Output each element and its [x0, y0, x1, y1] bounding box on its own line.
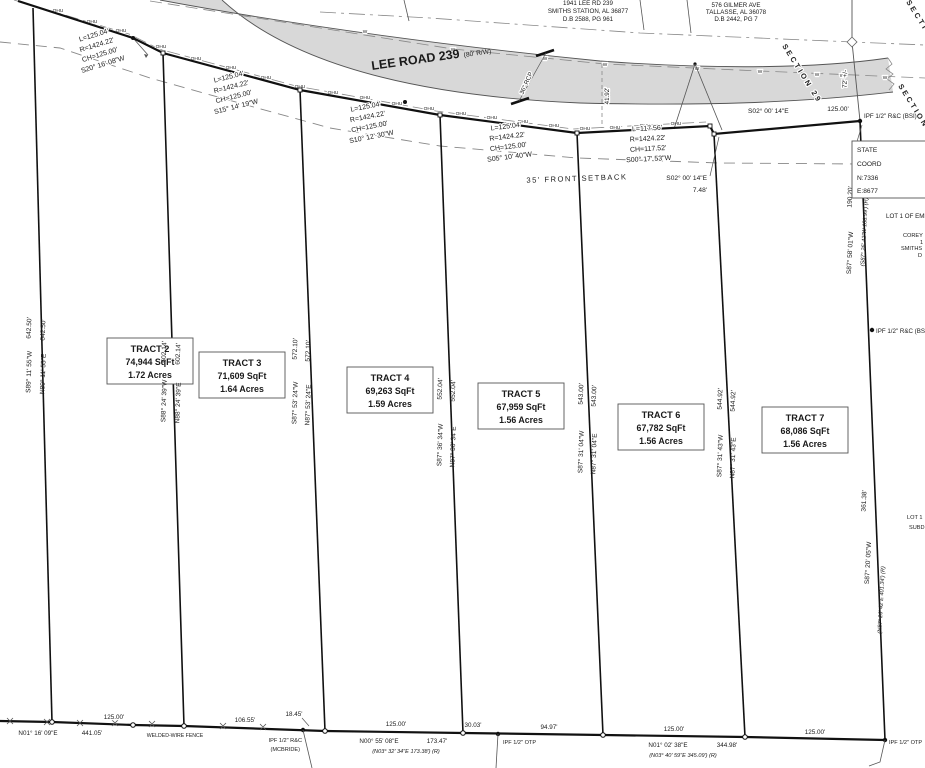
svg-text:361.38': 361.38'	[860, 490, 868, 512]
svg-text:173.47': 173.47'	[427, 738, 447, 745]
plat-drawing: W W W W W W W W W LEE ROAD 239(80' R/W) …	[0, 0, 925, 768]
svg-text:IPF 1/2" R&C: IPF 1/2" R&C	[269, 738, 302, 744]
svg-text:1941 LEE RD 239: 1941 LEE RD 239	[563, 0, 613, 7]
svg-text:94.97': 94.97'	[541, 724, 558, 731]
side-labels-6-7: 544.92' 544.92' S87° 31' 43"W N87° 31' 4…	[715, 388, 737, 478]
svg-text:544.92': 544.92'	[717, 388, 725, 410]
svg-text:68,086 SqFt: 68,086 SqFt	[781, 426, 830, 436]
svg-text:TRACT 3: TRACT 3	[223, 358, 262, 368]
svg-text:576 GILMER AVE: 576 GILMER AVE	[711, 2, 760, 9]
drop-line	[303, 730, 312, 768]
svg-text:IPF 1/2" R&C (BSI): IPF 1/2" R&C (BSI)	[864, 113, 917, 120]
svg-text:TALLASSE, AL 36078: TALLASSE, AL 36078	[706, 9, 767, 16]
svg-text:N87° 36' 34"E: N87° 36' 34"E	[448, 426, 457, 468]
svg-text:67,959 SqFt: 67,959 SqFt	[497, 402, 546, 412]
svg-text:IPF 1/2" R&C (BSI): IPF 1/2" R&C (BSI)	[876, 328, 925, 335]
svg-text:SUBD: SUBD	[909, 525, 925, 531]
jog-length: 7.48'	[693, 187, 707, 194]
curve-label-5: L=117.56'R=1424.22'CH=117.52'S00° 17' 53…	[624, 124, 671, 164]
svg-text:18.45': 18.45'	[286, 711, 303, 718]
svg-text:N88° 24' 39"E: N88° 24' 39"E	[173, 382, 182, 424]
svg-text:(S87° 26' 42"W 188.99') (R): (S87° 26' 42"W 188.99') (R)	[860, 197, 870, 266]
svg-text:WELDED-WIRE FENCE: WELDED-WIRE FENCE	[147, 733, 204, 739]
adjacent-lot-text: LOT 1 OF EME COREY 1 SMITHS D LOT 1 SUBD	[886, 213, 925, 531]
svg-text:1.64 Acres: 1.64 Acres	[220, 384, 264, 394]
section-corner-diamond	[847, 37, 857, 47]
dimension-label: 41.92'	[604, 88, 611, 105]
svg-text:552.04': 552.04'	[437, 378, 445, 400]
svg-text:552.04': 552.04'	[450, 380, 458, 402]
svg-text:OHU: OHU	[456, 111, 467, 117]
svg-text:STATE: STATE	[857, 147, 878, 154]
svg-text:602.14': 602.14'	[161, 341, 169, 363]
parcel-line	[640, 0, 644, 30]
svg-text:S87° 53' 24"W: S87° 53' 24"W	[290, 381, 300, 425]
svg-text:SMITHS STATION, AL 36877: SMITHS STATION, AL 36877	[548, 8, 629, 15]
svg-text:COORD: COORD	[857, 161, 882, 168]
section-33-label: SECTION 33	[904, 0, 925, 61]
setback-label: 35' FRONT SETBACK	[526, 172, 627, 185]
tract-label-3: TRACT 3 71,609 SqFt 1.64 Acres	[199, 352, 285, 398]
svg-text:125.00': 125.00'	[386, 721, 406, 728]
svg-text:S87° 31' 43"W: S87° 31' 43"W	[715, 434, 725, 478]
svg-text:TRACT 5: TRACT 5	[502, 389, 541, 399]
side-labels-4-5: 552.04' 552.04' S87° 36' 34"W N87° 36' 3…	[435, 378, 457, 467]
tract-label-5: TRACT 5 67,959 SqFt 1.56 Acres	[478, 383, 564, 429]
svg-text:602.14': 602.14'	[175, 343, 183, 365]
svg-text:S87° 20' 05"W: S87° 20' 05"W	[863, 541, 873, 585]
svg-text:SMITHS: SMITHS	[901, 246, 922, 252]
tract-label-4: TRACT 4 69,263 SqFt 1.59 Acres	[347, 367, 433, 413]
svg-text:S87° 58' 01"W: S87° 58' 01"W	[845, 231, 855, 275]
svg-text:S88° 24' 39"W: S88° 24' 39"W	[159, 379, 169, 423]
svg-text:1.56 Acres: 1.56 Acres	[499, 415, 543, 425]
svg-text:106.55': 106.55'	[235, 717, 255, 724]
owner-block-left: 1941 LEE RD 239 SMITHS STATION, AL 36877…	[548, 0, 629, 23]
svg-text:30.03': 30.03'	[465, 722, 482, 729]
ipf-dot	[858, 119, 862, 123]
svg-text:TRACT 7: TRACT 7	[786, 413, 825, 423]
svg-text:125.00': 125.00'	[805, 729, 825, 736]
svg-text:N01° 02' 38"E: N01° 02' 38"E	[648, 741, 687, 749]
svg-text:N89° 11' 55"E: N89° 11' 55"E	[38, 353, 47, 394]
side-labels-west: 642.50' 642.50' S89° 11' 55"W N89° 11' 5…	[24, 317, 47, 394]
svg-text:1.72 Acres: 1.72 Acres	[128, 370, 172, 380]
svg-text:(MCBRIDE): (MCBRIDE)	[270, 747, 300, 753]
svg-text:LOT 1 OF EME: LOT 1 OF EME	[886, 213, 925, 220]
svg-text:642.50': 642.50'	[26, 317, 34, 339]
svg-text:TRACT 6: TRACT 6	[642, 410, 681, 420]
svg-text:572.10': 572.10'	[292, 338, 300, 360]
south-run-labels: N01° 16' 09"E 441.05' WELDED-WIRE FENCE …	[18, 729, 737, 759]
svg-text:125.00': 125.00'	[104, 714, 124, 721]
svg-text:67,782 SqFt: 67,782 SqFt	[637, 423, 686, 433]
svg-text:S87° 31' 04"W: S87° 31' 04"W	[576, 430, 586, 474]
tract-label-6: TRACT 6 67,782 SqFt 1.56 Acres	[618, 404, 704, 450]
svg-text:N01° 16' 09"E: N01° 16' 09"E	[18, 729, 57, 737]
svg-text:S87° 36' 34"W: S87° 36' 34"W	[435, 423, 445, 467]
svg-text:D.B 2442, PG 7: D.B 2442, PG 7	[714, 16, 758, 23]
svg-text:W: W	[603, 62, 608, 68]
svg-text:N00° 55' 08"E: N00° 55' 08"E	[359, 737, 398, 745]
side-labels-5-6: 543.00' 543.00' S87° 31' 04"W N87° 31' 0…	[576, 383, 598, 474]
svg-text:1.56 Acres: 1.56 Acres	[783, 439, 827, 449]
east-labels-upper: 190.20' S87° 58' 01"W (S87° 26' 42"W 188…	[845, 186, 870, 274]
svg-text:OHU: OHU	[580, 126, 591, 132]
section-line	[852, 0, 860, 121]
survey-plat-sheet: W W W W W W W W W LEE ROAD 239(80' R/W) …	[0, 0, 925, 768]
svg-text:D.B 2588, PG 961: D.B 2588, PG 961	[563, 16, 614, 23]
width-leader	[302, 718, 309, 726]
parcel-line	[404, 0, 409, 21]
svg-text:IPF 1/2" OTP: IPF 1/2" OTP	[503, 740, 536, 746]
svg-text:(N03° 40' 59"E 345.09') (R): (N03° 40' 59"E 345.09') (R)	[649, 753, 717, 759]
svg-text:N87° 31' 04"E: N87° 31' 04"E	[589, 433, 598, 475]
coordinate-box: STATE COORD N:7336 E:8677	[852, 125, 925, 198]
jog-bearing: S02° 00' 14"E	[666, 174, 707, 182]
svg-text:N87° 53' 24"E: N87° 53' 24"E	[303, 384, 312, 426]
side-labels-3-4: 572.10' 572.10' S87° 53' 24"W N87° 53' 2…	[290, 338, 312, 425]
svg-text:344.98': 344.98'	[717, 742, 737, 749]
svg-text:1.59 Acres: 1.59 Acres	[368, 399, 412, 409]
svg-text:LOT 1: LOT 1	[907, 515, 922, 521]
svg-text:N:7336: N:7336	[857, 175, 879, 182]
curve-label-2: L=125.04'R=1424.22'CH=125.00'S15° 14' 19…	[206, 69, 259, 116]
svg-text:OHU: OHU	[487, 115, 498, 121]
svg-text:N87° 31' 43"E: N87° 31' 43"E	[728, 437, 737, 479]
svg-text:OHU: OHU	[549, 123, 560, 129]
svg-text:441.05': 441.05'	[82, 730, 102, 737]
owner-block-right: 576 GILMER AVE TALLASSE, AL 36078 D.B 24…	[706, 2, 767, 23]
svg-text:IPF 1/2" OTP: IPF 1/2" OTP	[889, 740, 922, 746]
svg-text:COREY: COREY	[903, 233, 923, 239]
svg-text:W: W	[363, 29, 368, 35]
parcel-line	[687, 0, 691, 33]
svg-text:572.10': 572.10'	[305, 340, 313, 362]
svg-text:W: W	[815, 72, 820, 78]
svg-text:543.00': 543.00'	[591, 385, 599, 407]
svg-text:W: W	[758, 69, 763, 75]
svg-text:125.00': 125.00'	[664, 726, 684, 733]
north-segment-bearing: S02° 00' 14"E	[748, 107, 789, 115]
svg-text:642.50': 642.50'	[40, 319, 48, 341]
east-labels-lower: 361.38' S87° 20' 05"W (N87° 26' 42"E 401…	[860, 490, 886, 634]
svg-text:W: W	[883, 75, 888, 81]
svg-text:544.92': 544.92'	[730, 390, 738, 412]
svg-text:71,609 SqFt: 71,609 SqFt	[218, 371, 267, 381]
tract-3-4-line	[300, 90, 325, 731]
svg-text:D: D	[918, 253, 922, 259]
utility-pole-dot	[403, 100, 407, 104]
drop-line	[496, 734, 498, 768]
north-segment-length: 125.00'	[827, 106, 848, 113]
svg-text:543.00': 543.00'	[578, 383, 586, 405]
ipf-dot	[870, 328, 874, 332]
svg-text:OHU: OHU	[424, 106, 435, 112]
drop-line	[869, 740, 885, 766]
svg-text:(N03° 32' 34"E 173.38') (R): (N03° 32' 34"E 173.38') (R)	[372, 749, 440, 755]
svg-text:1.56 Acres: 1.56 Acres	[639, 436, 683, 446]
svg-text:S89° 11' 55"W: S89° 11' 55"W	[24, 350, 33, 393]
tract-label-7: TRACT 7 68,086 SqFt 1.56 Acres	[762, 407, 848, 453]
svg-text:E:8677: E:8677	[857, 188, 878, 195]
section-gap-dim: 72' +/-	[842, 70, 850, 89]
svg-text:69,263 SqFt: 69,263 SqFt	[366, 386, 415, 396]
svg-text:TRACT 4: TRACT 4	[371, 373, 411, 383]
